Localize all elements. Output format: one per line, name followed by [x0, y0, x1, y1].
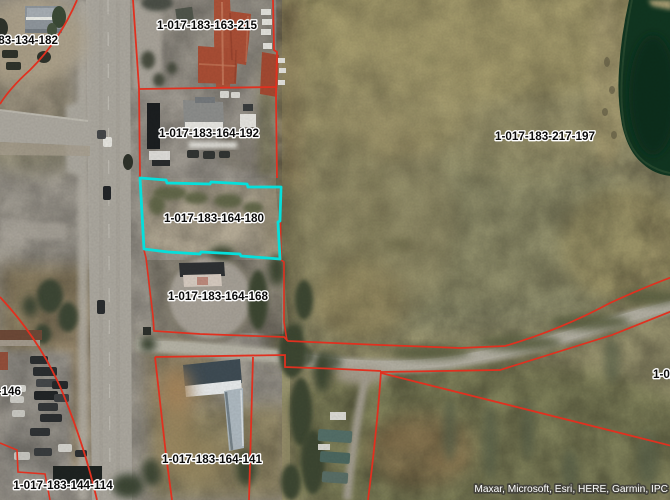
svg-text:1-017-183-144-146: 1-017-183-144-146 — [0, 385, 21, 398]
svg-text:1-017-183-164-180: 1-017-183-164-180 — [164, 212, 265, 225]
svg-text:Maxar, Microsoft, Esri, HERE,: Maxar, Microsoft, Esri, HERE, Garmin, IP… — [474, 484, 668, 495]
svg-text:1-017-183-164-141: 1-017-183-164-141 — [162, 453, 263, 466]
svg-text:1-017-183-164-192: 1-017-183-164-192 — [159, 127, 260, 140]
svg-text:1-017-183-217-197: 1-017-183-217-197 — [495, 130, 595, 143]
svg-text:1-017-183-163-215: 1-017-183-163-215 — [157, 19, 258, 32]
svg-text:1-017-183-134-182: 1-017-183-134-182 — [0, 34, 58, 47]
svg-text:1-017-183-144-114: 1-017-183-144-114 — [13, 479, 113, 492]
svg-text:1-017-183: 1-017-183 — [653, 368, 670, 381]
svg-text:1-017-183-164-168: 1-017-183-164-168 — [168, 290, 269, 303]
